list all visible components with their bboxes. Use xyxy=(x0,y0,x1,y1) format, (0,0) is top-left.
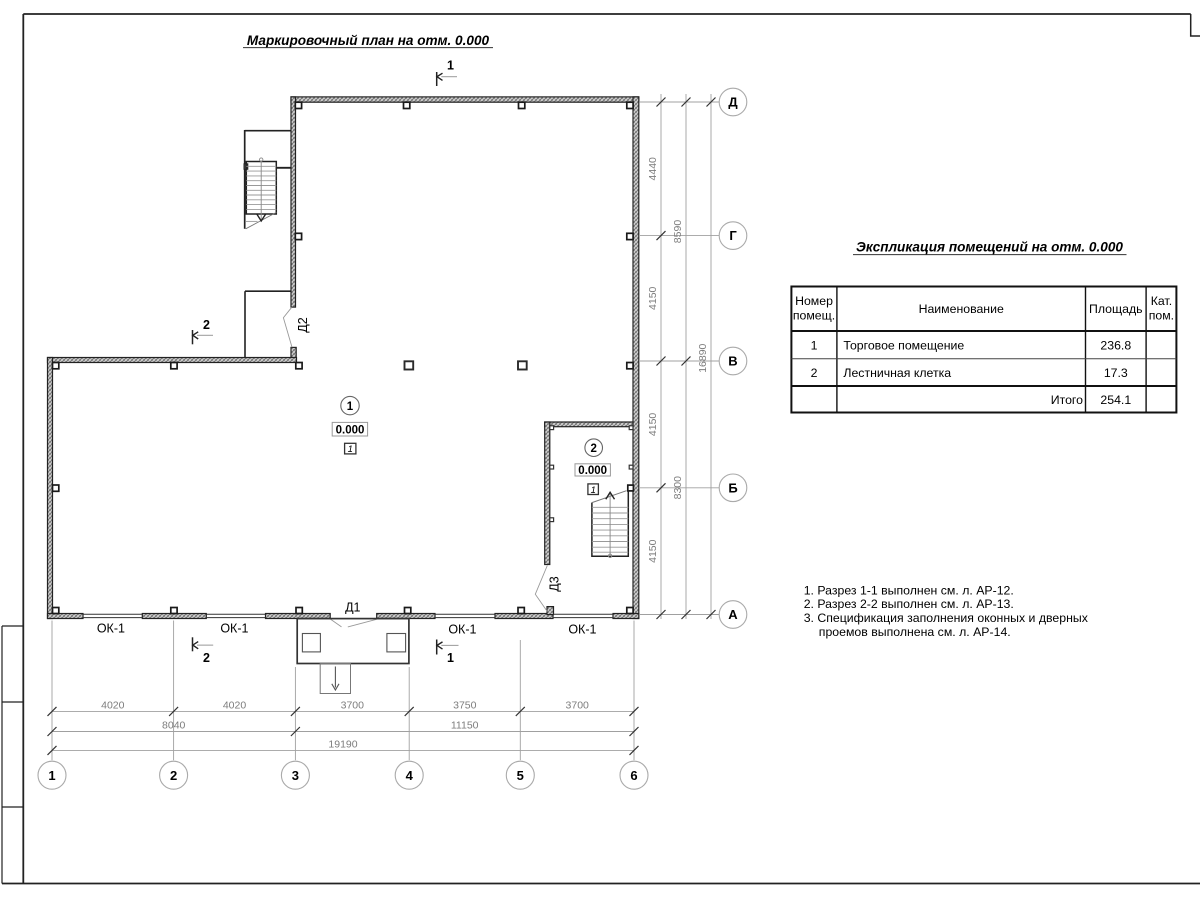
svg-text:4150: 4150 xyxy=(647,413,659,437)
svg-text:Площадь: Площадь xyxy=(1089,302,1143,316)
svg-text:Д3: Д3 xyxy=(548,576,562,591)
svg-text:Д1: Д1 xyxy=(345,601,360,615)
svg-text:5: 5 xyxy=(517,768,524,783)
svg-text:2: 2 xyxy=(203,318,210,332)
svg-text:Кат.: Кат. xyxy=(1151,294,1172,308)
svg-text:Д: Д xyxy=(728,95,738,110)
svg-text:0.000: 0.000 xyxy=(578,465,607,477)
svg-text:4440: 4440 xyxy=(647,157,659,181)
svg-text:ОК-1: ОК-1 xyxy=(448,623,476,637)
svg-text:1: 1 xyxy=(348,444,353,455)
svg-text:1: 1 xyxy=(447,651,454,665)
svg-text:2. Разрез 2-2 выполнен см. л.: 2. Разрез 2-2 выполнен см. л. АР-13. xyxy=(804,597,1014,611)
svg-text:2: 2 xyxy=(203,651,210,665)
svg-text:Маркировочный план на отм. 0.0: Маркировочный план на отм. 0.000 xyxy=(247,33,490,48)
svg-text:Д2: Д2 xyxy=(296,317,310,332)
svg-text:ОК-1: ОК-1 xyxy=(220,622,248,636)
svg-text:1: 1 xyxy=(347,401,354,413)
svg-text:4020: 4020 xyxy=(223,699,247,711)
svg-text:ОК-1: ОК-1 xyxy=(97,622,125,636)
svg-text:19190: 19190 xyxy=(328,738,357,750)
svg-text:Лестничная клетка: Лестничная клетка xyxy=(843,366,951,380)
svg-text:А: А xyxy=(728,607,738,622)
svg-text:Номер: Номер xyxy=(795,294,833,308)
svg-text:4150: 4150 xyxy=(647,286,659,310)
svg-text:16890: 16890 xyxy=(697,343,709,372)
svg-text:1: 1 xyxy=(447,59,454,73)
svg-text:2: 2 xyxy=(590,443,596,455)
svg-text:4020: 4020 xyxy=(101,699,125,711)
svg-text:Торговое помещение: Торговое помещение xyxy=(843,339,964,353)
svg-text:помещ.: помещ. xyxy=(793,309,835,323)
svg-text:8300: 8300 xyxy=(672,476,684,500)
svg-text:2: 2 xyxy=(811,366,818,380)
svg-text:1: 1 xyxy=(48,768,55,783)
svg-text:254.1: 254.1 xyxy=(1100,393,1131,407)
svg-text:Б: Б xyxy=(728,480,737,495)
svg-text:4150: 4150 xyxy=(647,539,659,563)
svg-text:пом.: пом. xyxy=(1149,309,1174,323)
svg-text:3700: 3700 xyxy=(566,699,590,711)
svg-text:В: В xyxy=(728,354,737,369)
svg-text:проемов выполнена см. л. АР-14: проемов выполнена см. л. АР-14. xyxy=(819,625,1011,639)
svg-text:11150: 11150 xyxy=(451,719,479,731)
svg-text:17.3: 17.3 xyxy=(1104,366,1128,380)
svg-text:Экспликация помещений на отм.: Экспликация помещений на отм. 0.000 xyxy=(856,240,1123,255)
svg-text:1. Разрез 1-1 выполнен см. л.: 1. Разрез 1-1 выполнен см. л. АР-12. xyxy=(804,583,1014,597)
svg-text:8590: 8590 xyxy=(672,220,684,244)
svg-text:3. Спецификация заполнения око: 3. Спецификация заполнения оконных и две… xyxy=(804,611,1089,625)
svg-text:ОК-1: ОК-1 xyxy=(568,623,596,637)
svg-text:1: 1 xyxy=(811,339,818,353)
svg-text:3700: 3700 xyxy=(341,699,365,711)
svg-text:Наименование: Наименование xyxy=(919,302,1004,316)
svg-text:Г: Г xyxy=(729,228,737,243)
svg-text:236.8: 236.8 xyxy=(1100,339,1131,353)
svg-text:Итого: Итого xyxy=(1051,393,1083,407)
svg-text:8040: 8040 xyxy=(162,719,186,731)
svg-text:0.000: 0.000 xyxy=(336,424,365,436)
svg-text:3: 3 xyxy=(292,768,299,783)
svg-text:6: 6 xyxy=(630,768,637,783)
svg-text:3750: 3750 xyxy=(453,699,477,711)
svg-text:1: 1 xyxy=(591,485,596,496)
svg-text:2: 2 xyxy=(170,768,177,783)
svg-text:4: 4 xyxy=(406,768,414,783)
